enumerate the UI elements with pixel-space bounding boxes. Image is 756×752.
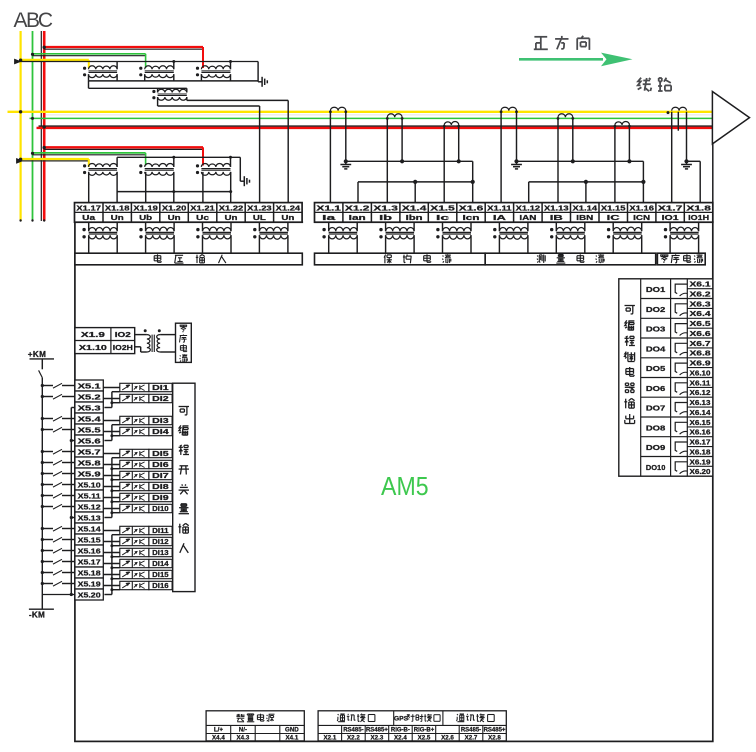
svg-text:ICN: ICN: [633, 213, 650, 222]
svg-text:RS485+: RS485+: [484, 728, 506, 734]
svg-text:DI11: DI11: [152, 528, 169, 535]
svg-text:Icn: Icn: [463, 213, 481, 222]
svg-text:X1.2: X1.2: [345, 203, 370, 212]
svg-text:X1.15: X1.15: [601, 203, 626, 212]
svg-text:X1.22: X1.22: [219, 203, 244, 212]
svg-text:X6.15: X6.15: [690, 418, 711, 427]
svg-text:X6.2: X6.2: [690, 290, 711, 299]
svg-text:IO1: IO1: [662, 213, 679, 222]
svg-text:X6.17: X6.17: [690, 438, 711, 447]
svg-text:Un: Un: [281, 213, 295, 222]
svg-text:X5.15: X5.15: [78, 536, 101, 545]
svg-text:X6.16: X6.16: [690, 428, 711, 437]
svg-text:X6.7: X6.7: [690, 339, 711, 348]
svg-text:X1.23: X1.23: [247, 203, 272, 212]
svg-text:X4.1: X4.1: [286, 735, 299, 742]
svg-text:X6.3: X6.3: [690, 299, 711, 308]
svg-text:X1.18: X1.18: [105, 203, 130, 212]
svg-text:X1.21: X1.21: [190, 203, 215, 212]
svg-text:X1.14: X1.14: [573, 203, 599, 212]
svg-text:X1.3: X1.3: [373, 203, 398, 212]
svg-text:IC: IC: [607, 213, 621, 222]
svg-text:Ia: Ia: [322, 213, 337, 222]
svg-text:DI8: DI8: [152, 484, 169, 491]
svg-text:Ib: Ib: [379, 213, 393, 222]
svg-text:X1.12: X1.12: [516, 203, 541, 212]
svg-text:X6.13: X6.13: [690, 398, 711, 407]
svg-text:X6.12: X6.12: [690, 388, 711, 397]
svg-text:X1.17: X1.17: [76, 203, 101, 212]
svg-text:DO9: DO9: [646, 443, 666, 452]
svg-text:IO1H: IO1H: [688, 213, 709, 222]
svg-text:X1.5: X1.5: [430, 203, 455, 212]
svg-text:DO7: DO7: [646, 404, 666, 413]
svg-text:DO2: DO2: [646, 305, 666, 314]
svg-text:X6.18: X6.18: [690, 447, 711, 456]
svg-text:IAN: IAN: [519, 213, 536, 222]
svg-text:DI13: DI13: [152, 550, 169, 557]
svg-text:RS485+: RS485+: [366, 728, 388, 734]
svg-text:DO5: DO5: [646, 364, 666, 373]
svg-text:DO1: DO1: [646, 285, 666, 294]
svg-text:X6.8: X6.8: [690, 349, 711, 358]
svg-text:GPS: GPS: [394, 716, 409, 723]
svg-text:Uc: Uc: [196, 213, 209, 222]
svg-text:X2.4: X2.4: [394, 735, 407, 742]
svg-text:X5.20: X5.20: [78, 591, 101, 600]
svg-text:DI9: DI9: [152, 495, 169, 502]
svg-text:X1.10: X1.10: [79, 343, 107, 352]
svg-text:X6.9: X6.9: [690, 359, 711, 368]
svg-text:DI16: DI16: [152, 583, 169, 590]
svg-text:X5.7: X5.7: [78, 448, 101, 457]
svg-text:IO2H: IO2H: [113, 343, 133, 352]
svg-text:X5.16: X5.16: [78, 547, 101, 556]
svg-text:X5.10: X5.10: [78, 481, 101, 490]
svg-text:X1.24: X1.24: [276, 203, 302, 212]
svg-text:X2.6: X2.6: [441, 735, 454, 742]
svg-text:DI7: DI7: [152, 473, 169, 480]
svg-text:RS485-: RS485-: [461, 728, 481, 734]
svg-text:X1.8: X1.8: [686, 203, 711, 212]
svg-text:X1.19: X1.19: [133, 203, 158, 212]
svg-text:X6.11: X6.11: [690, 378, 711, 387]
svg-text:X6.5: X6.5: [690, 319, 711, 328]
svg-text:X1.9: X1.9: [81, 330, 105, 339]
svg-text:Ian: Ian: [349, 213, 367, 222]
svg-text:DO10: DO10: [646, 463, 666, 472]
svg-text:X2.8: X2.8: [488, 735, 501, 742]
svg-text:DI14: DI14: [152, 561, 169, 568]
svg-text:C: C: [38, 9, 53, 32]
svg-text:Ua: Ua: [82, 213, 96, 222]
svg-text:X6.6: X6.6: [690, 329, 711, 338]
svg-text:DI15: DI15: [152, 572, 169, 579]
svg-text:DI10: DI10: [152, 506, 169, 513]
svg-text:X6.1: X6.1: [690, 280, 711, 289]
svg-text:RS485-: RS485-: [343, 728, 363, 734]
svg-text:X2.7: X2.7: [465, 735, 478, 742]
svg-text:Ic: Ic: [436, 213, 449, 222]
svg-text:X1.4: X1.4: [402, 203, 428, 212]
svg-text:X1.16: X1.16: [629, 203, 654, 212]
svg-text:X6.10: X6.10: [690, 369, 711, 378]
svg-text:IB: IB: [550, 213, 564, 222]
svg-text:DI3: DI3: [152, 418, 169, 425]
svg-text:X5.5: X5.5: [78, 426, 101, 435]
svg-text:Un: Un: [111, 213, 125, 222]
svg-text:+KM: +KM: [28, 350, 46, 359]
svg-text:X1.7: X1.7: [658, 203, 683, 212]
svg-text:X5.12: X5.12: [78, 503, 101, 512]
svg-text:X2.2: X2.2: [347, 735, 360, 742]
svg-text:IA: IA: [493, 213, 507, 222]
svg-text:UL: UL: [253, 213, 267, 222]
svg-text:L/+: L/+: [214, 727, 223, 734]
svg-text:X5.11: X5.11: [78, 492, 101, 501]
svg-text:X5.1: X5.1: [78, 382, 101, 391]
svg-text:IBN: IBN: [576, 213, 593, 222]
svg-text:X2.5: X2.5: [418, 735, 431, 742]
svg-text:X5.6: X5.6: [78, 437, 101, 446]
svg-text:X5.3: X5.3: [78, 404, 101, 413]
svg-text:-KM: -KM: [29, 611, 45, 620]
svg-text:DI1: DI1: [152, 385, 169, 392]
svg-text:Ub: Ub: [139, 213, 153, 222]
svg-text:DI2: DI2: [152, 396, 169, 403]
svg-text:X5.2: X5.2: [78, 393, 101, 402]
svg-text:DO4: DO4: [646, 344, 667, 353]
svg-text:X4.3: X4.3: [237, 735, 250, 742]
svg-text:X1.20: X1.20: [162, 203, 187, 212]
svg-text:X5.4: X5.4: [78, 415, 102, 424]
svg-text:X1.13: X1.13: [544, 203, 569, 212]
svg-text:AM5: AM5: [381, 471, 429, 501]
svg-text:X5.17: X5.17: [78, 558, 101, 567]
svg-text:DO8: DO8: [646, 423, 666, 432]
svg-text:DI5: DI5: [152, 451, 169, 458]
svg-text:DO6: DO6: [646, 384, 666, 393]
svg-text:X5.14: X5.14: [78, 525, 102, 534]
svg-text:Un: Un: [225, 213, 239, 222]
svg-text:X1.11: X1.11: [487, 203, 512, 212]
svg-text:X5.18: X5.18: [78, 569, 101, 578]
svg-text:X6.4: X6.4: [690, 309, 712, 318]
svg-text:X2.3: X2.3: [371, 735, 384, 742]
svg-text:X6.20: X6.20: [690, 467, 711, 476]
svg-text:RIG-B-: RIG-B-: [391, 728, 410, 734]
svg-text:IO2: IO2: [115, 330, 131, 339]
svg-text:N/-: N/-: [239, 727, 247, 734]
svg-text:X5.9: X5.9: [78, 470, 101, 479]
svg-text:X5.8: X5.8: [78, 459, 101, 468]
svg-text:Ibn: Ibn: [406, 213, 424, 222]
svg-text:RIG-B+: RIG-B+: [414, 728, 435, 734]
svg-text:DI6: DI6: [152, 462, 169, 469]
svg-text:X1.6: X1.6: [459, 203, 484, 212]
svg-text:DI4: DI4: [152, 429, 169, 436]
svg-text:X5.13: X5.13: [78, 514, 101, 523]
svg-text:X6.14: X6.14: [690, 408, 712, 417]
svg-text:X1.1: X1.1: [316, 203, 341, 212]
svg-text:GND: GND: [285, 727, 299, 734]
svg-text:X2.1: X2.1: [324, 735, 337, 742]
svg-text:DO3: DO3: [646, 325, 666, 334]
svg-text:X5.19: X5.19: [78, 580, 101, 589]
svg-text:X6.19: X6.19: [690, 457, 711, 466]
svg-text:X4.4: X4.4: [212, 735, 225, 742]
svg-text:DI12: DI12: [152, 539, 169, 546]
svg-text:Un: Un: [168, 213, 182, 222]
